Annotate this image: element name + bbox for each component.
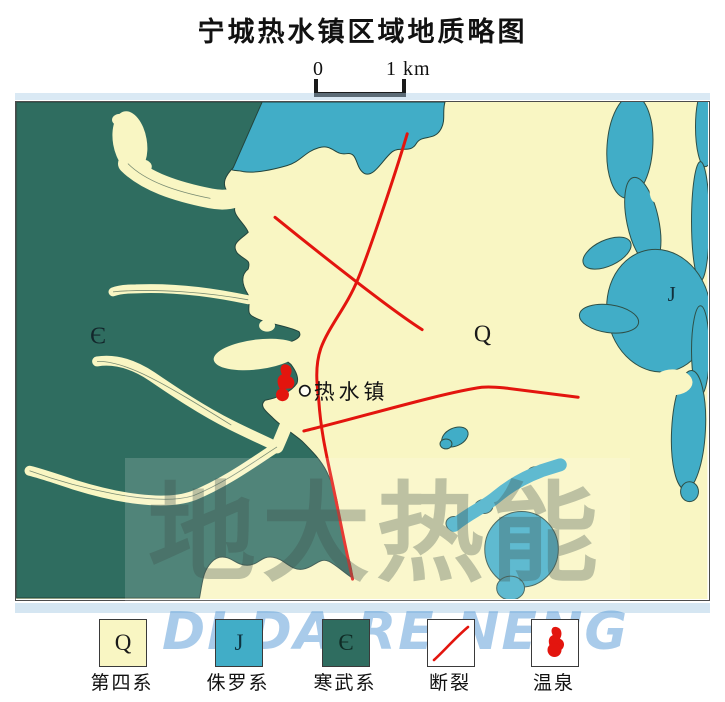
legend-swatch-jurassic: J (215, 619, 263, 667)
watermark-tint-strip-bottom (15, 603, 710, 613)
legend-swatch-spring (531, 619, 579, 667)
hot-spring-icon (533, 621, 577, 665)
legend-label-spring: 温泉 (494, 668, 614, 695)
quaternary-label: Q (474, 322, 491, 348)
legend-swatch-cambrian: Є (322, 619, 370, 667)
scalebar-start-label: 0 (306, 58, 330, 81)
legend-symbol-q: Q (115, 630, 132, 656)
legend-symbol-j: J (235, 630, 244, 656)
town-marker (300, 386, 310, 396)
legend-label-jurassic: 侏罗系 (178, 668, 298, 695)
cambrian-label: Є (90, 324, 106, 350)
legend-symbol-e: Є (338, 630, 353, 656)
legend-swatch-fault (427, 619, 475, 667)
geologic-map-page: 宁城热水镇区域地质略图 0 1 km (0, 0, 725, 702)
watermark-tint-strip-top (15, 93, 710, 100)
town-label: 热水镇 (314, 380, 389, 404)
legend-label-quaternary: 第四系 (62, 668, 182, 695)
page-title: 宁城热水镇区域地质略图 (0, 10, 725, 49)
legend-swatch-quaternary: Q (99, 619, 147, 667)
map-frame: 热水镇 Є Q J (15, 101, 710, 601)
geologic-map-canvas: 热水镇 Є Q J (16, 102, 708, 599)
fault-line-icon (429, 621, 473, 665)
legend-label-cambrian: 寒武系 (285, 668, 405, 695)
jurassic-label: J (668, 282, 676, 306)
legend-label-fault: 断裂 (390, 668, 510, 695)
scalebar-end-label: 1 km (386, 58, 431, 81)
